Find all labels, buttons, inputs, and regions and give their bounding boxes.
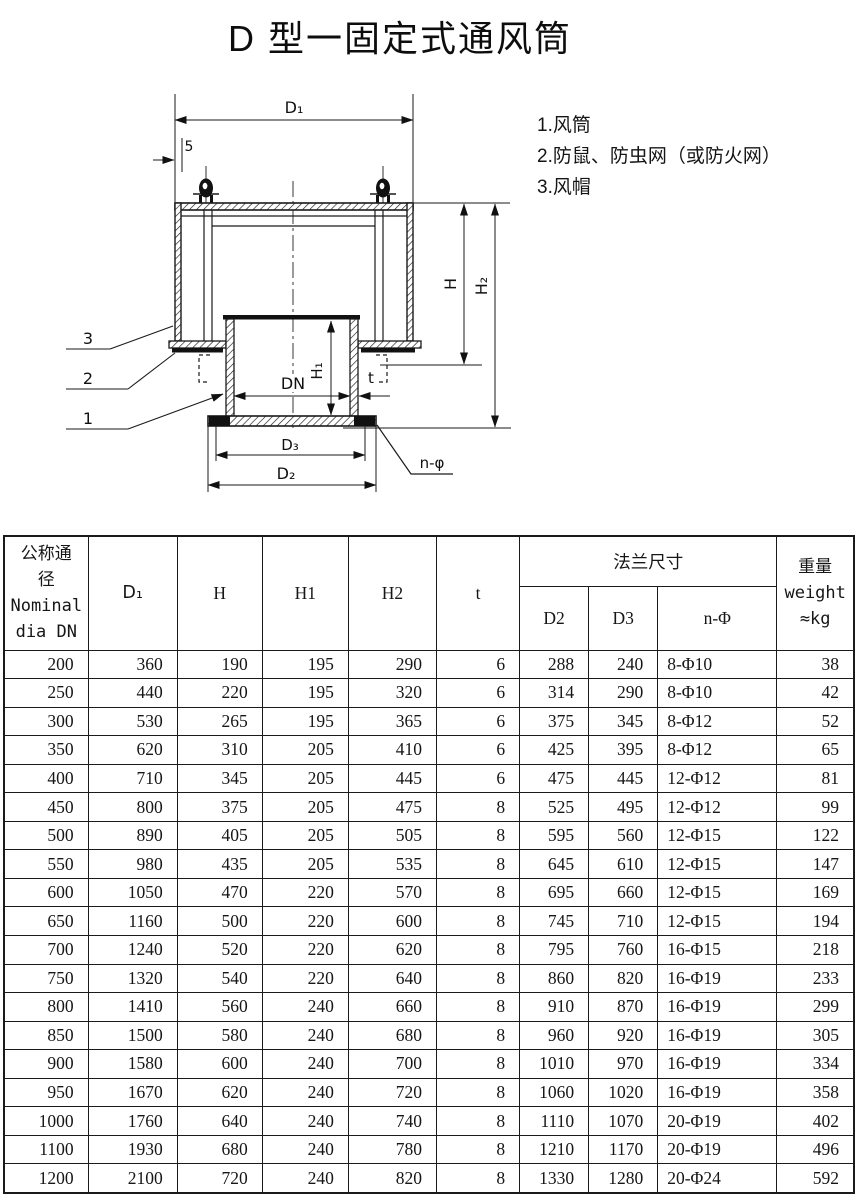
table-cell: 1110 (520, 1107, 589, 1136)
table-cell: 16-Φ15 (658, 935, 777, 964)
dim-label-h2: H₂ (472, 277, 491, 295)
col-header-d2: D2 (520, 586, 589, 650)
table-cell: 205 (262, 821, 348, 850)
table-cell: 8 (436, 1164, 519, 1193)
dimension-h2 (343, 204, 511, 428)
table-cell: 680 (177, 1135, 262, 1164)
table-cell: 530 (88, 707, 177, 736)
table-row: 400710345205445647544512-Φ1281 (4, 764, 854, 793)
table-cell: 500 (4, 821, 88, 850)
table-cell: 560 (589, 821, 658, 850)
dim-label-5: 5 (185, 139, 194, 155)
table-cell: 960 (520, 1021, 589, 1050)
table-cell: 620 (177, 1078, 262, 1107)
table-cell: 240 (262, 1135, 348, 1164)
table-cell: 1010 (520, 1050, 589, 1079)
table-cell: 850 (4, 1021, 88, 1050)
table-cell: 400 (4, 764, 88, 793)
table-row: 7001240520220620879576016-Φ15218 (4, 935, 854, 964)
table-cell: 860 (520, 964, 589, 993)
table-cell: 1210 (520, 1135, 589, 1164)
table-cell: 695 (520, 878, 589, 907)
table-cell: 680 (348, 1021, 436, 1050)
table-cell: 1100 (4, 1135, 88, 1164)
dim-label-d2: D₂ (277, 464, 296, 483)
table-cell: 288 (520, 650, 589, 679)
table-cell: 970 (589, 1050, 658, 1079)
table-cell: 8 (436, 1078, 519, 1107)
header-line: dia DN (6, 619, 87, 645)
table-cell: 8 (436, 878, 519, 907)
table-cell: 16-Φ19 (658, 964, 777, 993)
dimension-table: 公称通 径 Nominal dia DN D₁ H H1 H2 t 法兰尺寸 重… (3, 535, 855, 1194)
table-cell: 710 (88, 764, 177, 793)
header-line: weight (778, 580, 852, 606)
table-cell: 495 (589, 793, 658, 822)
table-cell: 38 (777, 650, 854, 679)
col-header-flange-group: 法兰尺寸 (520, 536, 777, 586)
table-cell: 710 (589, 907, 658, 936)
table-row: 8001410560240660891087016-Φ19299 (4, 993, 854, 1022)
header-line: 重量 (778, 554, 852, 580)
table-cell: 920 (589, 1021, 658, 1050)
table-cell: 350 (4, 736, 88, 765)
table-cell: 1160 (88, 907, 177, 936)
table-cell: 2100 (88, 1164, 177, 1193)
table-cell: 16-Φ19 (658, 1021, 777, 1050)
table-cell: 425 (520, 736, 589, 765)
table-cell: 870 (589, 993, 658, 1022)
table-cell: 290 (348, 650, 436, 679)
table-cell: 910 (520, 993, 589, 1022)
table-cell: 12-Φ15 (658, 850, 777, 879)
table-cell: 365 (348, 707, 436, 736)
table-row: 950167062024072081060102016-Φ19358 (4, 1078, 854, 1107)
table-cell: 505 (348, 821, 436, 850)
table-cell: 800 (88, 793, 177, 822)
table-row: 6501160500220600874571012-Φ15194 (4, 907, 854, 936)
table-row: 550980435205535864561012-Φ15147 (4, 850, 854, 879)
table-cell: 300 (4, 707, 88, 736)
table-cell: 592 (777, 1164, 854, 1193)
dimension-5 (153, 138, 182, 172)
table-cell: 205 (262, 850, 348, 879)
table-cell: 6 (436, 736, 519, 765)
table-cell: 645 (520, 850, 589, 879)
table-cell: 240 (262, 993, 348, 1022)
table-cell: 470 (177, 878, 262, 907)
table-cell: 1930 (88, 1135, 177, 1164)
table-cell: 1580 (88, 1050, 177, 1079)
table-cell: 1200 (4, 1164, 88, 1193)
table-body: 20036019019529062882408-Φ103825044022019… (4, 650, 854, 1193)
table-cell: 320 (348, 679, 436, 708)
col-header-t: t (436, 536, 519, 650)
table-cell: 640 (348, 964, 436, 993)
legend-item-3: 3.风帽 (537, 172, 781, 203)
table-cell: 20-Φ24 (658, 1164, 777, 1193)
table-cell: 402 (777, 1107, 854, 1136)
table-row: 90015806002407008101097016-Φ19334 (4, 1050, 854, 1079)
table-cell: 169 (777, 878, 854, 907)
table-cell: 81 (777, 764, 854, 793)
table-cell: 800 (4, 993, 88, 1022)
header-line: ≈kg (778, 606, 852, 632)
table-cell: 220 (262, 935, 348, 964)
table-row: 7501320540220640886082016-Φ19233 (4, 964, 854, 993)
table-cell: 950 (4, 1078, 88, 1107)
table-cell: 299 (777, 993, 854, 1022)
table-cell: 8 (436, 1135, 519, 1164)
table-cell: 435 (177, 850, 262, 879)
table-cell: 8 (436, 1021, 519, 1050)
callout-label-1: 1 (83, 409, 93, 428)
table-cell: 8 (436, 850, 519, 879)
table-cell: 1060 (520, 1078, 589, 1107)
table-cell: 6 (436, 650, 519, 679)
table-cell: 900 (4, 1050, 88, 1079)
table-cell: 595 (520, 821, 589, 850)
col-header-nphi: n-Φ (658, 586, 777, 650)
col-header-weight: 重量 weight ≈kg (777, 536, 854, 650)
table-cell: 52 (777, 707, 854, 736)
table-cell: 740 (348, 1107, 436, 1136)
table-cell: 475 (520, 764, 589, 793)
table-cell: 535 (348, 850, 436, 879)
table-cell: 580 (177, 1021, 262, 1050)
table-cell: 310 (177, 736, 262, 765)
table-cell: 445 (589, 764, 658, 793)
table-cell: 795 (520, 935, 589, 964)
table-cell: 8-Φ12 (658, 736, 777, 765)
table-cell: 1500 (88, 1021, 177, 1050)
page-title: D 型一固定式通风筒 (0, 10, 800, 62)
table-row: 35062031020541064253958-Φ1265 (4, 736, 854, 765)
table-cell: 220 (177, 679, 262, 708)
callout-label-3: 3 (83, 329, 93, 348)
col-header-d1: D₁ (88, 536, 177, 650)
table-cell: 220 (262, 964, 348, 993)
vent-duct-drawing: D₁ 5 (58, 86, 528, 536)
table-cell: 6 (436, 679, 519, 708)
table-cell: 620 (88, 736, 177, 765)
header-line: Nominal (6, 593, 87, 619)
table-cell: 360 (88, 650, 177, 679)
table-cell: 358 (777, 1078, 854, 1107)
table-cell: 640 (177, 1107, 262, 1136)
table-cell: 220 (262, 878, 348, 907)
table-row: 30053026519536563753458-Φ1252 (4, 707, 854, 736)
table-cell: 240 (262, 1021, 348, 1050)
table-cell: 820 (348, 1164, 436, 1193)
table-cell: 780 (348, 1135, 436, 1164)
dim-label-d3: D₃ (281, 436, 299, 454)
dim-label-nphi: n-φ (420, 454, 445, 472)
table-cell: 750 (4, 964, 88, 993)
table-cell: 200 (4, 650, 88, 679)
table-cell: 147 (777, 850, 854, 879)
table-cell: 450 (4, 793, 88, 822)
table-cell: 445 (348, 764, 436, 793)
table-cell: 122 (777, 821, 854, 850)
vent-cap (169, 203, 421, 382)
table-cell: 240 (262, 1164, 348, 1193)
table-cell: 16-Φ19 (658, 993, 777, 1022)
col-header-h2: H2 (348, 536, 436, 650)
table-cell: 720 (348, 1078, 436, 1107)
table-row: 1000176064024074081110107020-Φ19402 (4, 1107, 854, 1136)
table-cell: 1070 (589, 1107, 658, 1136)
table-cell: 12-Φ12 (658, 793, 777, 822)
table-cell: 6 (436, 764, 519, 793)
table-cell: 250 (4, 679, 88, 708)
table-cell: 205 (262, 764, 348, 793)
table-cell: 8 (436, 964, 519, 993)
table-cell: 1410 (88, 993, 177, 1022)
table-cell: 195 (262, 679, 348, 708)
table-cell: 265 (177, 707, 262, 736)
dim-label-t: t (368, 369, 374, 387)
table-cell: 1050 (88, 878, 177, 907)
table-cell: 194 (777, 907, 854, 936)
table-cell: 233 (777, 964, 854, 993)
table-cell: 8 (436, 1050, 519, 1079)
table-cell: 240 (262, 1050, 348, 1079)
table-cell: 1320 (88, 964, 177, 993)
table-cell: 190 (177, 650, 262, 679)
header-line: 径 (6, 567, 87, 593)
table-cell: 8 (436, 907, 519, 936)
table-cell: 720 (177, 1164, 262, 1193)
table-cell: 16-Φ19 (658, 1078, 777, 1107)
table-cell: 205 (262, 736, 348, 765)
table-cell: 1020 (589, 1078, 658, 1107)
table-cell: 1000 (4, 1107, 88, 1136)
table-cell: 525 (520, 793, 589, 822)
table-cell: 620 (348, 935, 436, 964)
table-row: 500890405205505859556012-Φ15122 (4, 821, 854, 850)
table-cell: 610 (589, 850, 658, 879)
table-cell: 570 (348, 878, 436, 907)
table-cell: 6 (436, 707, 519, 736)
col-header-d3: D3 (589, 586, 658, 650)
legend-item-2: 2.防鼠、防虫网（或防火网） (537, 141, 781, 172)
table-cell: 205 (262, 793, 348, 822)
header-line: 公称通 (6, 541, 87, 567)
table-cell: 1240 (88, 935, 177, 964)
table-cell: 240 (262, 1107, 348, 1136)
dim-label-d1: D₁ (285, 98, 304, 117)
table-cell: 8-Φ10 (658, 679, 777, 708)
col-header-h1: H1 (262, 536, 348, 650)
table-cell: 8-Φ12 (658, 707, 777, 736)
table-cell: 12-Φ15 (658, 907, 777, 936)
table-row: 450800375205475852549512-Φ1299 (4, 793, 854, 822)
technical-drawing: D₁ 5 (58, 86, 528, 536)
table-row: 25044022019532063142908-Φ1042 (4, 679, 854, 708)
table-cell: 375 (520, 707, 589, 736)
table-cell: 1330 (520, 1164, 589, 1193)
table-row: 6001050470220570869566012-Φ15169 (4, 878, 854, 907)
parts-legend: 1.风筒 2.防鼠、防虫网（或防火网） 3.风帽 (537, 110, 781, 203)
table-cell: 240 (589, 650, 658, 679)
table-cell: 1670 (88, 1078, 177, 1107)
table-cell: 220 (262, 907, 348, 936)
col-header-h: H (177, 536, 262, 650)
bottom-flange (208, 416, 376, 426)
table-cell: 650 (4, 907, 88, 936)
table-cell: 12-Φ15 (658, 878, 777, 907)
table-cell: 20-Φ19 (658, 1107, 777, 1136)
table-cell: 395 (589, 736, 658, 765)
table-cell: 345 (589, 707, 658, 736)
table-cell: 410 (348, 736, 436, 765)
dim-label-h: H (441, 278, 460, 290)
table-cell: 1760 (88, 1107, 177, 1136)
callout-label-2: 2 (83, 369, 93, 388)
table-row: 8501500580240680896092016-Φ19305 (4, 1021, 854, 1050)
table-cell: 334 (777, 1050, 854, 1079)
table-cell: 550 (4, 850, 88, 879)
table-cell: 8 (436, 993, 519, 1022)
table-cell: 1170 (589, 1135, 658, 1164)
dim-label-h1: H₁ (308, 362, 326, 379)
table-cell: 1280 (589, 1164, 658, 1193)
table-cell: 496 (777, 1135, 854, 1164)
table-cell: 345 (177, 764, 262, 793)
table-cell: 20-Φ19 (658, 1135, 777, 1164)
table-cell: 8 (436, 1107, 519, 1136)
table-cell: 745 (520, 907, 589, 936)
table-cell: 195 (262, 650, 348, 679)
table-cell: 540 (177, 964, 262, 993)
table-cell: 700 (4, 935, 88, 964)
table-cell: 520 (177, 935, 262, 964)
dim-label-dn: DN (281, 374, 305, 393)
table-cell: 12-Φ12 (658, 764, 777, 793)
table-row: 20036019019529062882408-Φ1038 (4, 650, 854, 679)
table-cell: 475 (348, 793, 436, 822)
table-cell: 240 (262, 1078, 348, 1107)
table-cell: 890 (88, 821, 177, 850)
table-cell: 65 (777, 736, 854, 765)
table-cell: 8-Φ10 (658, 650, 777, 679)
table-cell: 660 (589, 878, 658, 907)
table-cell: 195 (262, 707, 348, 736)
table-cell: 218 (777, 935, 854, 964)
table-cell: 375 (177, 793, 262, 822)
legend-item-1: 1.风筒 (537, 110, 781, 141)
table-cell: 660 (348, 993, 436, 1022)
table-cell: 600 (177, 1050, 262, 1079)
table-cell: 405 (177, 821, 262, 850)
table-cell: 600 (348, 907, 436, 936)
table-cell: 820 (589, 964, 658, 993)
table-cell: 8 (436, 793, 519, 822)
col-header-nominal-dia: 公称通 径 Nominal dia DN (4, 536, 88, 650)
table-cell: 440 (88, 679, 177, 708)
table-cell: 305 (777, 1021, 854, 1050)
table-cell: 560 (177, 993, 262, 1022)
table-cell: 500 (177, 907, 262, 936)
inner-pipe (223, 315, 360, 416)
table-cell: 8 (436, 821, 519, 850)
table-cell: 16-Φ19 (658, 1050, 777, 1079)
table-cell: 760 (589, 935, 658, 964)
table-cell: 12-Φ15 (658, 821, 777, 850)
table-cell: 99 (777, 793, 854, 822)
table-row: 1200210072024082081330128020-Φ24592 (4, 1164, 854, 1193)
table-row: 1100193068024078081210117020-Φ19496 (4, 1135, 854, 1164)
table-cell: 290 (589, 679, 658, 708)
table-cell: 980 (88, 850, 177, 879)
table-cell: 700 (348, 1050, 436, 1079)
table-cell: 314 (520, 679, 589, 708)
table-cell: 42 (777, 679, 854, 708)
table-cell: 600 (4, 878, 88, 907)
table-cell: 8 (436, 935, 519, 964)
